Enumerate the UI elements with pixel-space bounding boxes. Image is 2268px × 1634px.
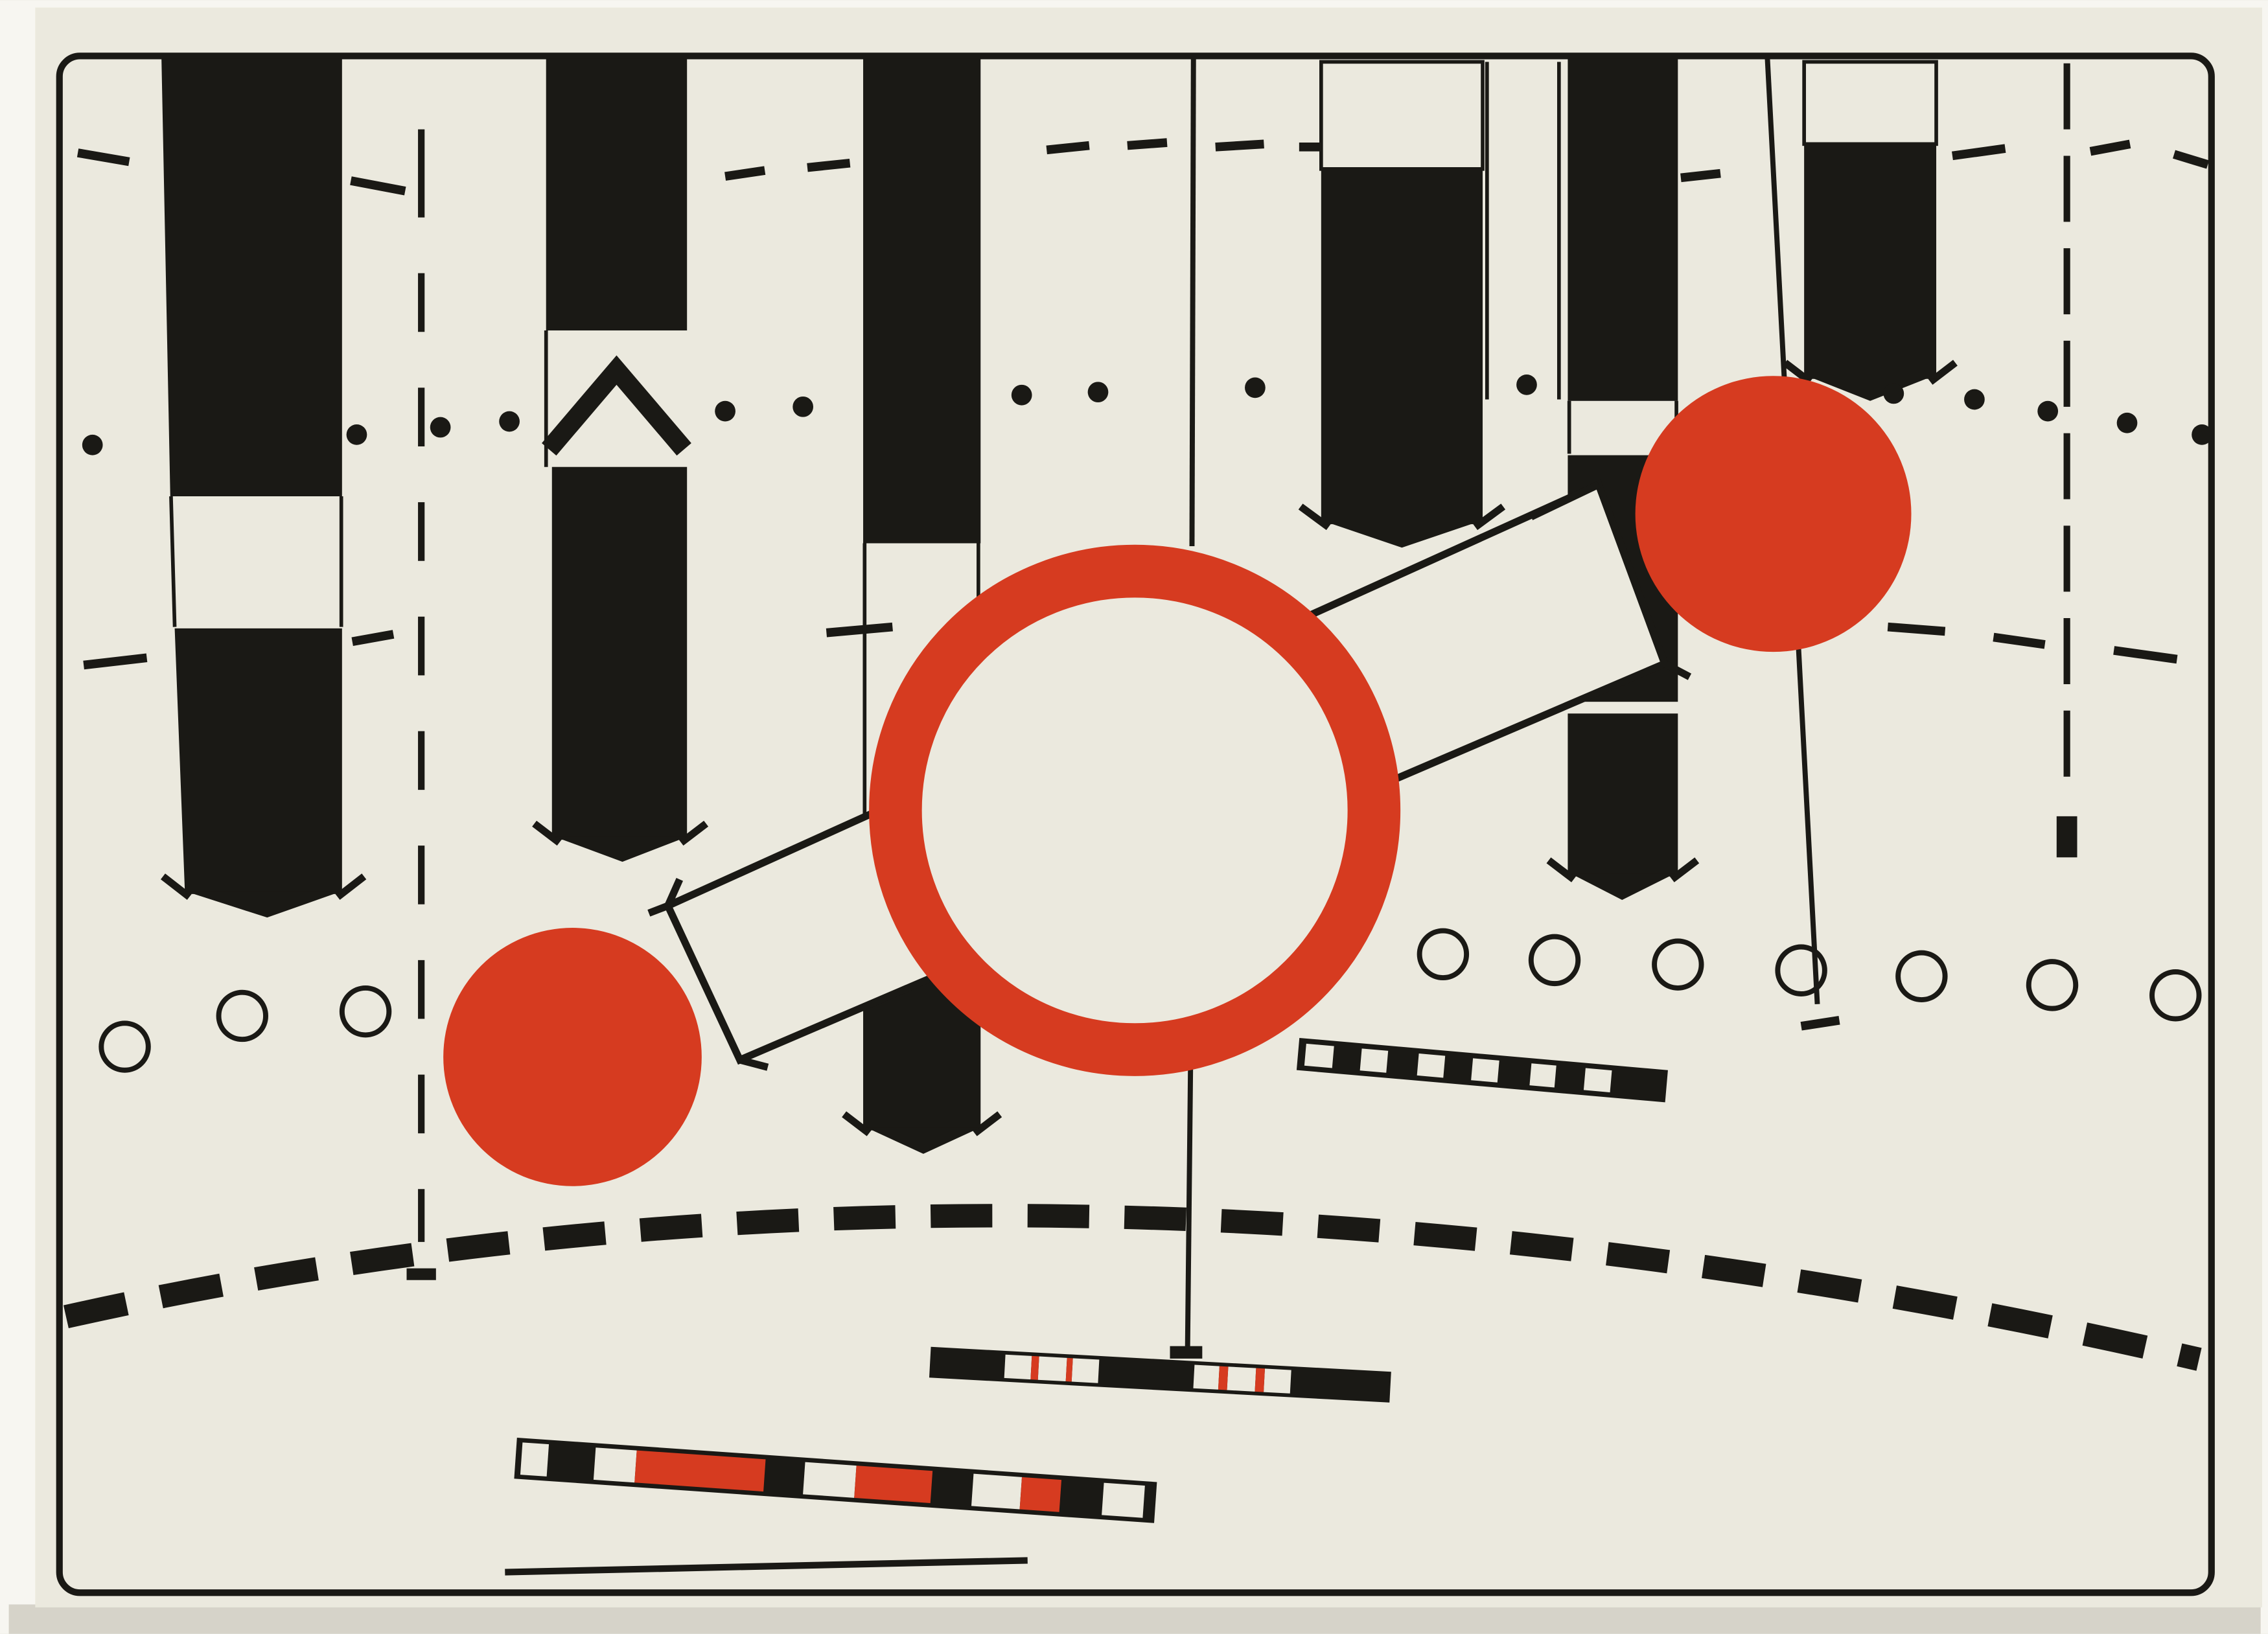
ruler-white-cells-part <box>1584 1068 1612 1092</box>
bar8-top <box>1568 59 1678 401</box>
diagonal-post-line-part <box>1801 1020 1840 1026</box>
ring-pole-part <box>1192 59 1193 546</box>
ruler-white-cells-part <box>1529 1063 1556 1087</box>
ruler-white-cells-part <box>1264 1368 1291 1393</box>
ruler-red-cells-part <box>1255 1368 1265 1392</box>
ruler-white-cells-part <box>1102 1483 1145 1518</box>
bar10-body <box>1804 144 1936 378</box>
bar8-lower <box>1568 713 1678 876</box>
dot-row-part <box>82 435 103 455</box>
dot-row-part <box>1516 374 1537 395</box>
ruler-white-cells-part <box>1471 1058 1499 1082</box>
top-dash-marks-part <box>1681 174 1720 178</box>
bar7-body <box>1321 169 1483 524</box>
dot-row-part <box>1012 385 1032 406</box>
ring-inner-blank <box>920 596 1348 1024</box>
photo-bottom-shadow <box>9 1604 2261 1633</box>
left-line-end-cap <box>407 1269 436 1280</box>
ruler-white-cells-part <box>520 1442 549 1477</box>
ruler-red-cells-part <box>854 1466 932 1503</box>
dot-row-part <box>793 397 813 417</box>
top-dash-marks-part <box>1216 144 1264 147</box>
ruler-white-cells-part <box>971 1474 1022 1510</box>
photographed-print <box>0 0 2268 1634</box>
ruler-red-cells-part <box>1020 1477 1061 1512</box>
ruler-white-cells-part <box>1004 1355 1032 1379</box>
left-red-disc <box>443 928 702 1186</box>
bar3-top <box>863 59 980 544</box>
top-dash-marks-part <box>807 163 850 168</box>
ruler-white-cells-part <box>1417 1053 1446 1077</box>
mid-dash-arc-part <box>826 627 892 633</box>
bar1-top <box>161 59 342 496</box>
dot-row-part <box>2192 424 2212 445</box>
dot-row-part <box>430 417 451 438</box>
top-dash-marks-part <box>1047 146 1089 150</box>
ruler-white-cells-part <box>1360 1048 1389 1072</box>
ruler-white-cells-part <box>1193 1365 1219 1390</box>
top-dash-marks-part <box>1128 143 1167 146</box>
ruler-white-cells-part <box>1227 1366 1256 1392</box>
photographed-print-part <box>0 0 2268 1634</box>
dot-row-part <box>2037 401 2058 422</box>
dot-row-part <box>499 411 520 432</box>
bar2-top <box>546 59 687 330</box>
dot-row-part <box>347 424 367 445</box>
bar1-lower <box>175 628 342 894</box>
top-dash-marks-part <box>725 170 765 176</box>
ring-pole-part <box>1188 1067 1191 1348</box>
ruler-white-cells-part <box>1304 1044 1334 1068</box>
bar2-body <box>552 467 687 840</box>
pole-end-cap <box>1170 1346 1203 1359</box>
right-line-end-cap <box>2057 816 2077 857</box>
ruler-red-cells-part <box>1030 1356 1039 1380</box>
dot-row-part <box>1088 382 1109 402</box>
mid-dash-arc-part <box>1888 627 1945 632</box>
ruler-white-cells-part <box>803 1462 857 1498</box>
ruler-white-cells-part <box>1072 1358 1100 1383</box>
ruler-red-cells-part <box>1218 1366 1229 1390</box>
dot-row-part <box>1964 389 1985 410</box>
dot-row-part <box>715 401 735 422</box>
ruler-white-cells-part <box>1038 1357 1067 1382</box>
dot-row-part <box>1883 384 1904 404</box>
dot-row-part <box>1245 378 1266 398</box>
right-red-disc <box>1636 376 1912 652</box>
ruler-white-cells-part <box>594 1447 637 1482</box>
dot-row-part <box>2117 413 2138 433</box>
